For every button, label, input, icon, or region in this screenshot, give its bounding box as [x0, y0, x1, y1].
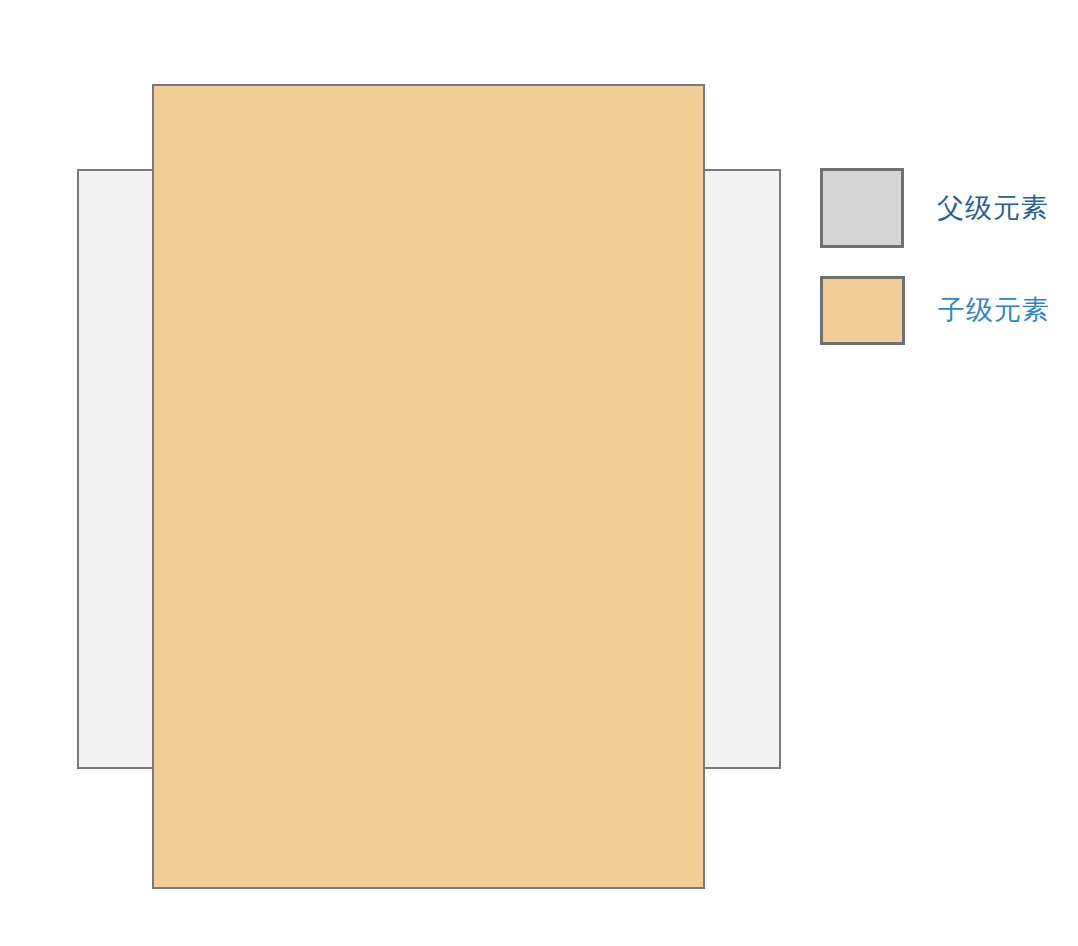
legend-item-child: 子级元素 [820, 276, 1050, 345]
child-element-rect [152, 84, 705, 889]
diagram-canvas: 父级元素 子级元素 [0, 0, 1078, 946]
legend-item-parent: 父级元素 [820, 168, 1049, 248]
legend-label-child: 子级元素 [938, 297, 1050, 324]
child-element-swatch [820, 276, 905, 345]
parent-element-swatch [820, 168, 904, 248]
legend-label-parent: 父级元素 [937, 195, 1049, 222]
